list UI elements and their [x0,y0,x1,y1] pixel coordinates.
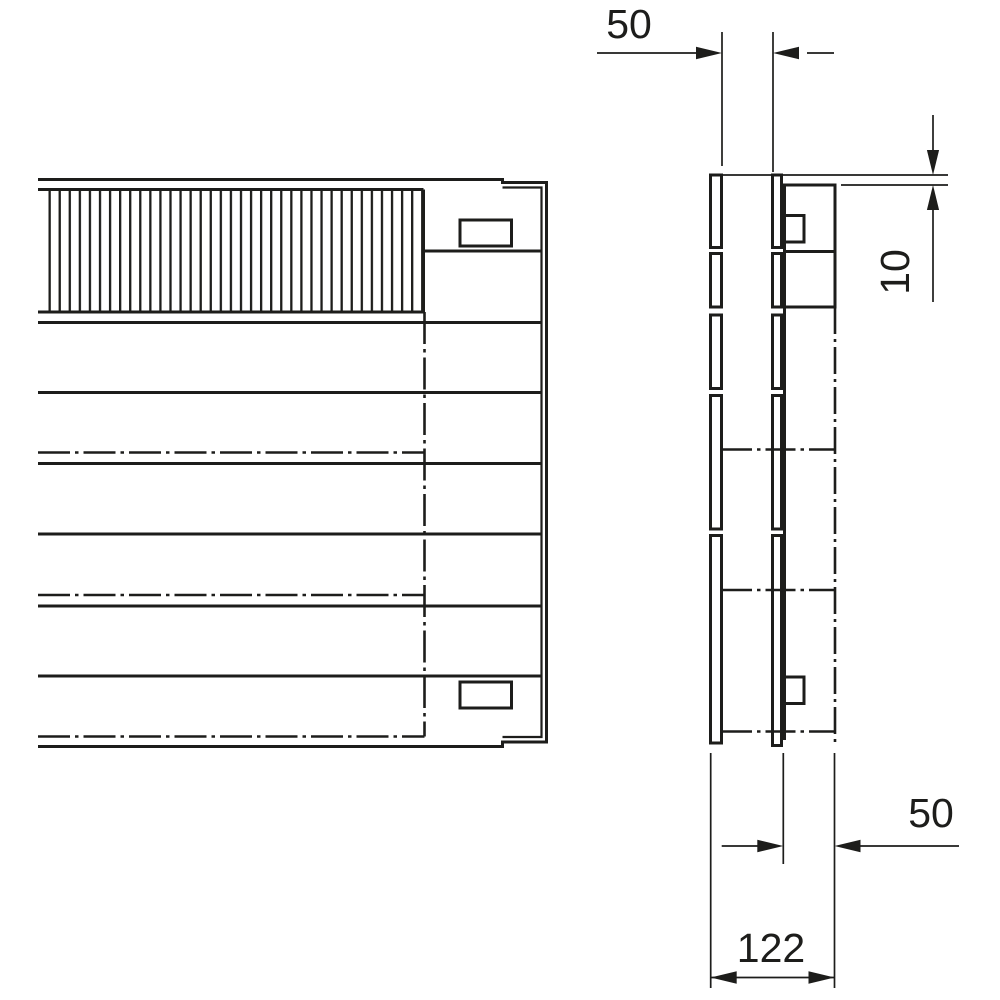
plate-segment [711,175,722,248]
drawing-canvas: 50 10 50 122 [0,0,1000,1000]
arrowhead-up [927,185,939,210]
louver-hatch-fill [49,191,424,311]
louver-grille [38,190,424,313]
arrowhead-left [773,47,799,59]
front-view [38,180,547,747]
arrowhead-down [927,150,939,175]
plate-segment [773,315,782,389]
plate-segment [711,254,722,308]
plate-segment [711,536,722,744]
arrowhead-right [757,840,783,852]
mounting-tab-top [785,216,805,243]
plate-segment [773,175,782,248]
technical-drawing: 50 10 50 122 [0,0,1000,1000]
latch-opening-top [460,220,512,246]
side-view [711,175,837,746]
dimension-top-50: 50 [597,1,834,172]
dimension-10: 10 [711,115,949,302]
arrowhead-right [809,971,835,983]
arrowhead-left [711,971,737,983]
dimension-value-10: 10 [872,249,918,295]
dimension-value-122: 122 [737,925,805,971]
dimension-bottom-50: 50 [722,753,959,864]
plate-segment [773,396,782,530]
plate-segment [773,254,782,308]
plate-segment [711,396,722,530]
plate-segment [773,536,782,746]
enclosure-body [785,185,836,744]
arrowhead-right [696,47,722,59]
mounting-tab-bottom [785,677,805,704]
cover-strip-lines [38,251,541,676]
dimension-value-top-50: 50 [606,1,652,47]
front-plate [711,175,722,743]
latch-opening-bottom [460,682,512,708]
dimension-value-bottom-50: 50 [908,790,954,836]
dimension-122: 122 [711,753,835,988]
mid-plate [773,175,782,746]
plate-segment [711,315,722,389]
body-outline [785,185,836,740]
rail-centerlines-front [38,312,425,737]
arrowhead-left [835,840,861,852]
